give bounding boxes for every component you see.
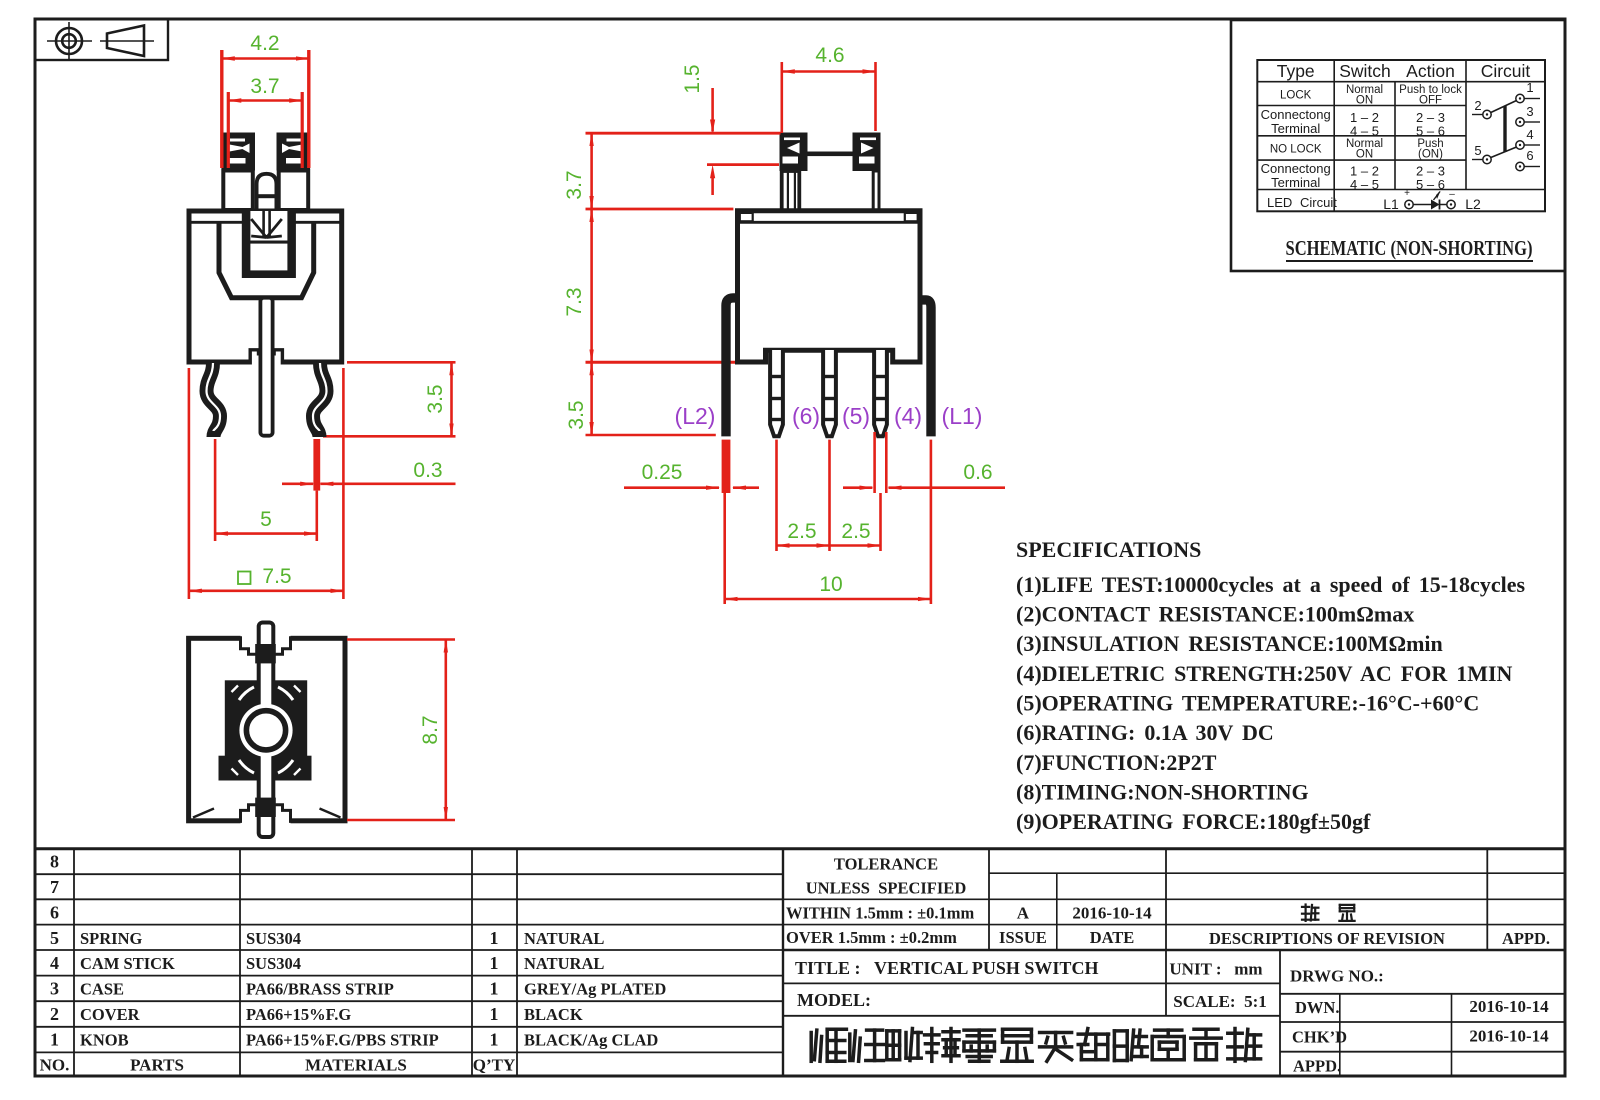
svg-text:LOCK: LOCK	[1280, 90, 1312, 102]
svg-text:–: –	[1449, 189, 1455, 200]
svg-text:3: 3	[1526, 104, 1533, 119]
svg-text:2: 2	[1474, 98, 1481, 113]
svg-text:(6)RATING: 0.1A 30V DC: (6)RATING: 0.1A 30V DC	[1016, 720, 1274, 745]
svg-text:GREY/Ag PLATED: GREY/Ag PLATED	[524, 980, 666, 999]
svg-text:6: 6	[50, 902, 59, 922]
svg-text:WITHIN 1.5mm : ±0.1mm: WITHIN 1.5mm : ±0.1mm	[786, 904, 975, 923]
svg-text:Terminal: Terminal	[1271, 121, 1320, 136]
svg-text:Terminal: Terminal	[1271, 175, 1320, 190]
svg-text:APPD.: APPD.	[1293, 1057, 1341, 1076]
svg-text:UNLESS SPECIFIED: UNLESS SPECIFIED	[806, 879, 967, 898]
svg-text:2016-10-14: 2016-10-14	[1469, 1027, 1549, 1046]
svg-text:5 – 6: 5 – 6	[1416, 124, 1445, 139]
svg-text:NATURAL: NATURAL	[524, 929, 604, 948]
svg-text:COVER: COVER	[80, 1005, 141, 1024]
svg-text:OFF: OFF	[1419, 95, 1442, 107]
svg-text:NO.: NO.	[40, 1056, 70, 1075]
svg-text:CASE: CASE	[80, 980, 124, 999]
svg-text:(7)FUNCTION:2P2T: (7)FUNCTION:2P2T	[1016, 750, 1217, 775]
svg-text:APPD.: APPD.	[1502, 929, 1550, 948]
svg-text:4.2: 4.2	[250, 32, 279, 55]
svg-text:4 – 5: 4 – 5	[1350, 124, 1379, 139]
svg-text:(9)OPERATING FORCE:180gf±50gf: (9)OPERATING FORCE:180gf±50gf	[1016, 809, 1371, 834]
svg-text:1: 1	[490, 928, 499, 948]
svg-text:Action: Action	[1406, 61, 1455, 81]
svg-text:NO LOCK: NO LOCK	[1270, 144, 1322, 156]
svg-text:CHK’D: CHK’D	[1292, 1028, 1347, 1047]
svg-text:1: 1	[1526, 80, 1533, 95]
svg-text:Type: Type	[1277, 61, 1315, 81]
svg-text:PA66+15%F.G: PA66+15%F.G	[246, 1005, 351, 1024]
svg-text:2016-10-14: 2016-10-14	[1469, 997, 1549, 1016]
svg-text:UNIT : mm: UNIT : mm	[1169, 960, 1262, 979]
svg-text:6: 6	[1526, 148, 1533, 163]
svg-text:8.7: 8.7	[419, 715, 442, 744]
svg-text:L1: L1	[1383, 196, 1399, 212]
svg-text:(ON): (ON)	[1418, 149, 1443, 161]
svg-text:MODEL:: MODEL:	[797, 990, 871, 1010]
svg-text:(L1): (L1)	[942, 403, 983, 429]
svg-text:3.5: 3.5	[565, 400, 588, 429]
svg-text:SUS304: SUS304	[246, 929, 301, 948]
svg-text:DRWG NO.:: DRWG NO.:	[1290, 967, 1384, 986]
svg-text:1: 1	[490, 953, 499, 973]
svg-text:OVER 1.5mm : ±0.2mm: OVER 1.5mm : ±0.2mm	[786, 928, 957, 947]
svg-text:3.7: 3.7	[250, 75, 279, 98]
svg-text:TOLERANCE: TOLERANCE	[834, 855, 938, 874]
svg-text:DATE: DATE	[1090, 928, 1135, 947]
svg-text:Q’TY: Q’TY	[473, 1056, 516, 1075]
svg-text:4: 4	[1526, 127, 1533, 142]
svg-text:2.5: 2.5	[787, 520, 816, 543]
svg-text:4: 4	[50, 953, 59, 973]
svg-text:+: +	[1404, 188, 1410, 199]
svg-text:LED: LED	[1267, 195, 1292, 210]
svg-text:8: 8	[50, 852, 59, 872]
svg-text:10: 10	[819, 573, 842, 596]
svg-text:(5)OPERATING TEMPERATURE:-16°C: (5)OPERATING TEMPERATURE:-16°C-+60°C	[1016, 691, 1479, 716]
svg-text:(2)CONTACT RESISTANCE:100mΩmax: (2)CONTACT RESISTANCE:100mΩmax	[1016, 602, 1414, 627]
svg-text:1: 1	[490, 979, 499, 999]
svg-text:1: 1	[490, 1029, 499, 1049]
svg-text:0.6: 0.6	[963, 461, 992, 484]
svg-text:Circuit: Circuit	[1481, 61, 1531, 81]
svg-text:0.25: 0.25	[642, 461, 683, 484]
svg-text:Connectong: Connectong	[1261, 161, 1331, 176]
svg-text:TITLE : VERTICAL PUSH SWITCH: TITLE : VERTICAL PUSH SWITCH	[795, 958, 1098, 978]
svg-text:ON: ON	[1356, 95, 1373, 107]
svg-text:SCALE: 5:1: SCALE: 5:1	[1173, 992, 1267, 1011]
svg-text:1: 1	[490, 1004, 499, 1024]
svg-text:3.7: 3.7	[563, 170, 586, 199]
svg-text:PARTS: PARTS	[130, 1056, 184, 1075]
svg-text:DWN.: DWN.	[1295, 998, 1339, 1017]
svg-text:2016-10-14: 2016-10-14	[1072, 904, 1152, 923]
svg-text:Circuit: Circuit	[1300, 195, 1337, 210]
svg-text:4.6: 4.6	[815, 44, 844, 67]
svg-text:5: 5	[1474, 143, 1481, 158]
svg-text:MATERIALS: MATERIALS	[305, 1056, 407, 1075]
svg-text:7.5: 7.5	[262, 565, 291, 588]
svg-text:SCHEMATIC (NON-SHORTING): SCHEMATIC (NON-SHORTING)	[1286, 236, 1533, 260]
svg-text:4 – 5: 4 – 5	[1350, 177, 1379, 192]
svg-text:Switch: Switch	[1339, 61, 1391, 81]
svg-text:A: A	[1017, 904, 1030, 923]
svg-text:5: 5	[260, 508, 272, 531]
svg-text:0.3: 0.3	[413, 459, 442, 482]
svg-text:BLACK/Ag CLAD: BLACK/Ag CLAD	[524, 1030, 658, 1049]
svg-text:3: 3	[50, 979, 59, 999]
svg-text:(4): (4)	[894, 403, 922, 429]
svg-text:ON: ON	[1356, 149, 1373, 161]
svg-text:(8)TIMING:NON-SHORTING: (8)TIMING:NON-SHORTING	[1016, 780, 1309, 805]
svg-text:7: 7	[50, 877, 59, 897]
svg-text:(L2): (L2)	[675, 403, 716, 429]
svg-text:5 – 6: 5 – 6	[1416, 177, 1445, 192]
svg-text:1: 1	[50, 1029, 59, 1049]
svg-text:3.5: 3.5	[424, 384, 447, 413]
svg-text:(3)INSULATION RESISTANCE:100MΩ: (3)INSULATION RESISTANCE:100MΩmin	[1016, 631, 1443, 656]
svg-text:PA66/BRASS STRIP: PA66/BRASS STRIP	[246, 980, 394, 999]
svg-text:PA66+15%F.G/PBS STRIP: PA66+15%F.G/PBS STRIP	[246, 1030, 439, 1049]
svg-text:SPECIFICATIONS: SPECIFICATIONS	[1016, 537, 1201, 562]
svg-text:DESCRIPTIONS OF REVISION: DESCRIPTIONS OF REVISION	[1209, 929, 1445, 948]
svg-text:7.3: 7.3	[563, 287, 586, 316]
svg-text:KNOB: KNOB	[80, 1030, 129, 1049]
svg-text:SPRING: SPRING	[80, 929, 143, 948]
svg-text:NATURAL: NATURAL	[524, 954, 604, 973]
svg-text:2: 2	[50, 1004, 59, 1024]
svg-text:(5): (5)	[842, 403, 870, 429]
svg-text:SUS304: SUS304	[246, 954, 301, 973]
svg-text:5: 5	[50, 928, 59, 948]
svg-text:L2: L2	[1465, 196, 1481, 212]
svg-text:(6): (6)	[792, 403, 820, 429]
svg-text:(4)DIELETRIC STRENGTH:250V AC: (4)DIELETRIC STRENGTH:250V AC FOR 1MIN	[1016, 661, 1513, 686]
svg-text:1.5: 1.5	[681, 64, 704, 93]
svg-text:2.5: 2.5	[841, 520, 870, 543]
svg-text:BLACK: BLACK	[524, 1005, 583, 1024]
svg-text:(1)LIFE TEST:10000cycles at a: (1)LIFE TEST:10000cycles at a speed of 1…	[1016, 572, 1525, 597]
svg-text:Connectong: Connectong	[1261, 107, 1331, 122]
svg-text:ISSUE: ISSUE	[999, 928, 1047, 947]
svg-text:CAM STICK: CAM STICK	[80, 954, 175, 973]
